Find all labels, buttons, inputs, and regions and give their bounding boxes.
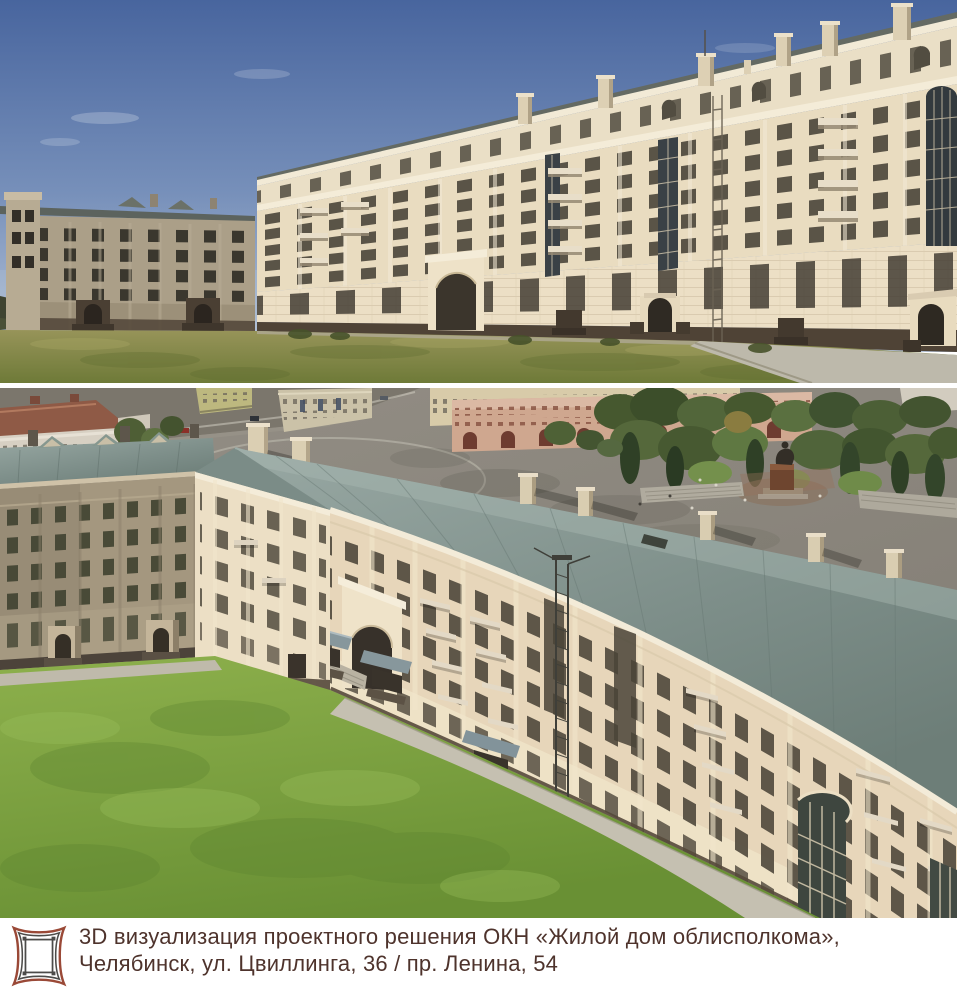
render-bottom-figure	[0, 388, 957, 918]
caption-line-1: 3D визуализация проектного решения ОКН «…	[79, 923, 840, 950]
left-wing-entrance	[72, 300, 114, 332]
caption-bar: 3D визуализация проектного решения ОКН «…	[0, 918, 957, 995]
entrance-door	[903, 289, 957, 352]
cloud	[71, 112, 139, 124]
ornamental-frame-logo	[10, 925, 68, 987]
left-wing-porch	[142, 620, 180, 662]
arched-portal	[425, 249, 487, 331]
cloud	[715, 43, 775, 53]
caption-text: 3D визуализация проектного решения ОКН «…	[79, 923, 840, 977]
left-wing-porch	[44, 626, 82, 668]
render-top-figure	[0, 0, 957, 383]
render-bottom-scene	[0, 388, 957, 918]
cloud	[234, 69, 290, 79]
left-wing-entrance	[182, 298, 224, 332]
render-top-scene	[0, 0, 957, 383]
page-root: 3D визуализация проектного решения ОКН «…	[0, 0, 957, 995]
left-wing-aerial	[0, 424, 215, 670]
entrance-door	[774, 318, 808, 345]
cloud	[40, 138, 80, 146]
caption-line-2: Челябинск, ул. Цвиллинга, 36 / пр. Ленин…	[79, 950, 840, 977]
entrance-door	[552, 310, 586, 335]
